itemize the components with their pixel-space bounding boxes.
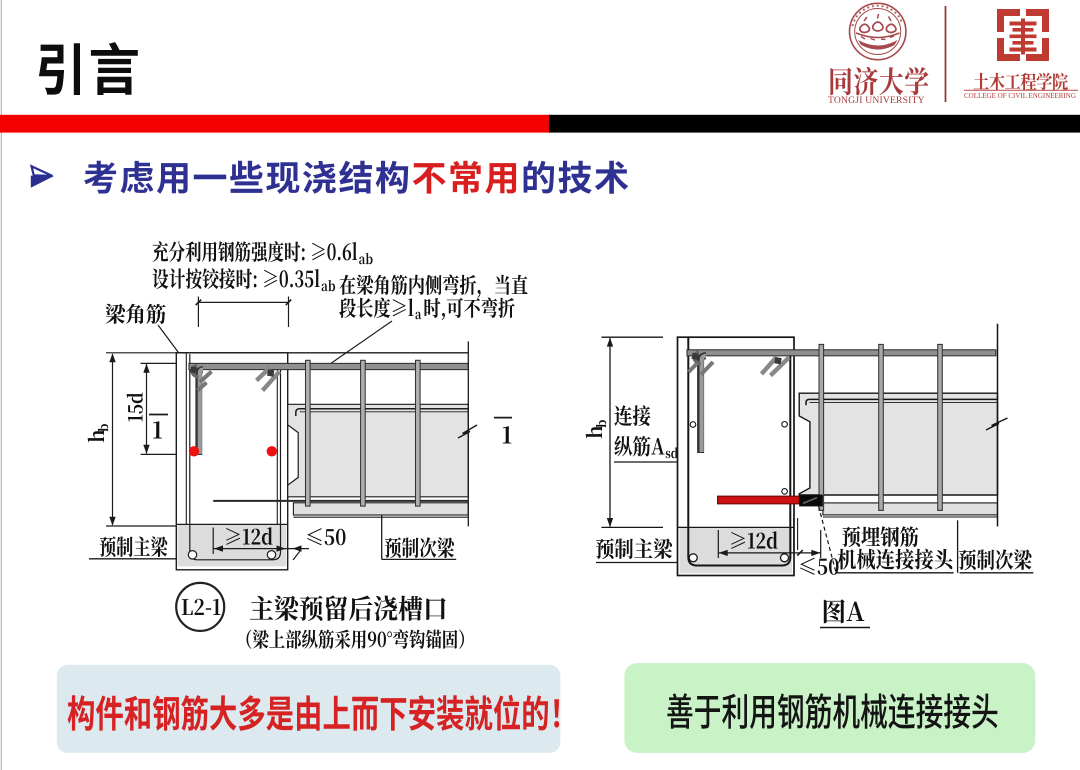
svg-text:COLLEGE OF CIVIL ENGINEERING: COLLEGE OF CIVIL ENGINEERING <box>964 92 1076 100</box>
svg-text:TONGJI UNIVERSITY: TONGJI UNIVERSITY <box>828 95 925 106</box>
